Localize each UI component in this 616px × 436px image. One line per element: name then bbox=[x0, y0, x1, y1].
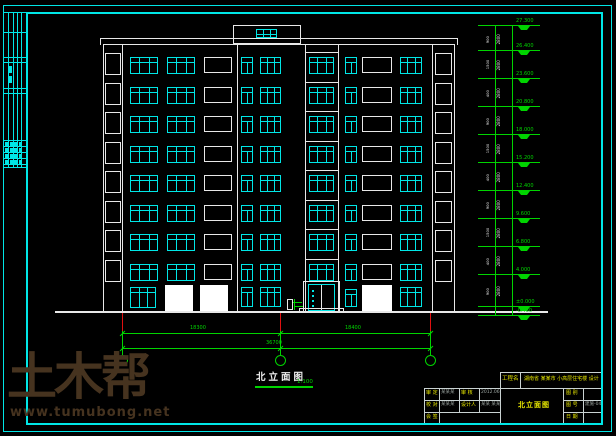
tb-project-label: 工程名 bbox=[502, 377, 520, 385]
tb-row-label2 bbox=[461, 415, 478, 422]
tb-line bbox=[500, 372, 601, 373]
tb-right-label: 图 号 bbox=[566, 403, 582, 410]
tb-line bbox=[424, 388, 601, 389]
tb-row-value: 某某某 bbox=[441, 391, 458, 398]
cad-sheet: 27.30026.40023.60020.80018.00015.20012.4… bbox=[0, 0, 616, 436]
tb-line bbox=[439, 388, 440, 423]
tb-row-label2: 设计人 bbox=[461, 403, 478, 410]
tb-row-label: 会 签 bbox=[426, 415, 438, 422]
tb-right-value: 建施-04 bbox=[585, 403, 601, 410]
tb-line bbox=[424, 400, 500, 401]
tb-line bbox=[563, 400, 601, 401]
tb-row-value: 某某某 bbox=[441, 403, 458, 410]
tb-right-value bbox=[585, 415, 601, 422]
watermark-url: www.tumubong.net bbox=[10, 406, 170, 419]
tb-line bbox=[479, 388, 480, 412]
tb-line bbox=[459, 388, 460, 412]
tb-line bbox=[583, 388, 584, 423]
tb-drawing-name: 北立面图 bbox=[506, 402, 562, 411]
tb-row-value2: 2012.06 bbox=[481, 391, 499, 398]
tb-line bbox=[563, 388, 564, 423]
tb-right-label: 图 别 bbox=[566, 391, 582, 398]
tb-right-value bbox=[585, 391, 601, 398]
tb-row-label: 审 定 bbox=[426, 391, 438, 398]
tb-project-name: 湖南省 某某市 小高层住宅楼 设计 bbox=[524, 377, 602, 384]
tb-row-label: 校 对 bbox=[426, 403, 438, 410]
tb-line bbox=[424, 412, 500, 413]
tb-row-value2 bbox=[481, 415, 499, 422]
tb-row-value bbox=[441, 415, 458, 422]
tb-row-label2: 审 核 bbox=[461, 391, 478, 398]
tb-line bbox=[424, 388, 425, 423]
watermark-logo: 土木帮 bbox=[7, 352, 148, 402]
tb-line bbox=[500, 372, 501, 423]
tb-line bbox=[563, 412, 601, 413]
tb-right-label: 日 期 bbox=[566, 415, 582, 422]
tb-row-value2: 某某 某某 bbox=[481, 403, 499, 410]
tb-line bbox=[520, 372, 521, 388]
